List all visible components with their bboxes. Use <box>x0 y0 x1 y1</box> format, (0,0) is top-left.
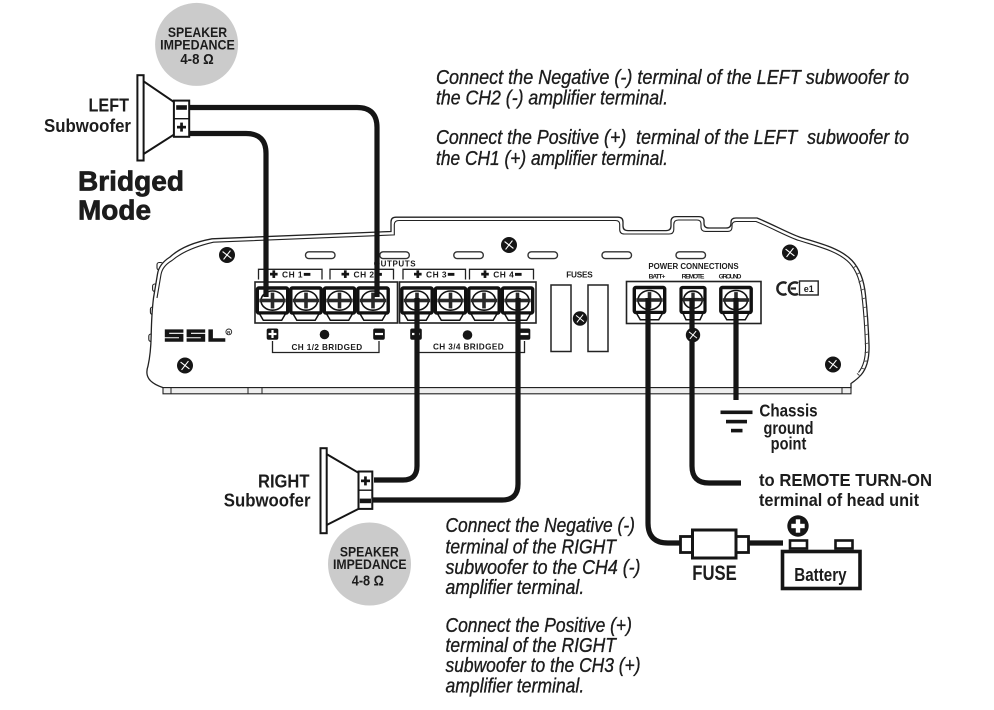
svg-text:Subwoofer: Subwoofer <box>224 489 311 510</box>
svg-text:to REMOTE TURN-ON: to REMOTE TURN-ON <box>759 470 932 490</box>
svg-text:BATT+: BATT+ <box>649 274 666 281</box>
svg-text:CH 3/4 BRIDGED: CH 3/4 BRIDGED <box>433 343 504 352</box>
svg-text:CH 2: CH 2 <box>354 269 375 279</box>
svg-text:Bridged: Bridged <box>78 166 184 197</box>
svg-text:CH 4: CH 4 <box>493 269 514 279</box>
svg-text:the CH1 (+) amplifier terminal: the CH1 (+) amplifier terminal. <box>436 148 668 170</box>
svg-text:the CH2 (-) amplifier terminal: the CH2 (-) amplifier terminal. <box>436 88 668 110</box>
svg-text:subwoofer to the CH4 (-): subwoofer to the CH4 (-) <box>446 557 641 579</box>
svg-text:e1: e1 <box>804 284 814 294</box>
svg-text:FUSES: FUSES <box>566 271 593 280</box>
svg-text:amplifier terminal.: amplifier terminal. <box>446 577 585 599</box>
svg-text:Connect the Positive (+): Connect the Positive (+) <box>446 615 632 637</box>
svg-text:Subwoofer: Subwoofer <box>44 115 131 136</box>
svg-text:point: point <box>771 433 807 453</box>
svg-text:Connect the Negative (-) termi: Connect the Negative (-) terminal of the… <box>436 67 909 89</box>
svg-text:POWER CONNECTIONS: POWER CONNECTIONS <box>648 261 739 271</box>
svg-text:CH 1/2 BRIDGED: CH 1/2 BRIDGED <box>291 343 362 352</box>
svg-text:4-8 Ω: 4-8 Ω <box>352 574 384 590</box>
svg-text:LEFT: LEFT <box>89 94 130 115</box>
svg-text:FUSE: FUSE <box>692 562 737 585</box>
svg-text:terminal of the RIGHT: terminal of the RIGHT <box>446 635 618 657</box>
svg-text:terminal of the RIGHT: terminal of the RIGHT <box>446 537 618 559</box>
svg-text:CH 1: CH 1 <box>282 269 303 279</box>
svg-text:4-8 Ω: 4-8 Ω <box>180 52 213 68</box>
svg-text:Mode: Mode <box>78 195 151 226</box>
svg-text:GROUND: GROUND <box>719 274 742 281</box>
svg-text:OUTPUTS: OUTPUTS <box>374 260 416 269</box>
svg-text:subwoofer to the CH3 (+): subwoofer to the CH3 (+) <box>446 655 641 677</box>
svg-text:Connect the Negative (-): Connect the Negative (-) <box>446 515 635 537</box>
svg-text:REMOTE: REMOTE <box>682 274 705 281</box>
svg-text:CH 3: CH 3 <box>426 269 447 279</box>
svg-text:terminal of head unit: terminal of head unit <box>759 490 919 510</box>
svg-text:amplifier terminal.: amplifier terminal. <box>446 675 585 697</box>
svg-text:Battery: Battery <box>794 565 846 585</box>
svg-text:Connect the Positive (+) term: Connect the Positive (+) terminal of the… <box>436 127 909 149</box>
svg-text:IMPEDANCE: IMPEDANCE <box>333 557 407 572</box>
svg-text:IMPEDANCE: IMPEDANCE <box>160 37 235 52</box>
